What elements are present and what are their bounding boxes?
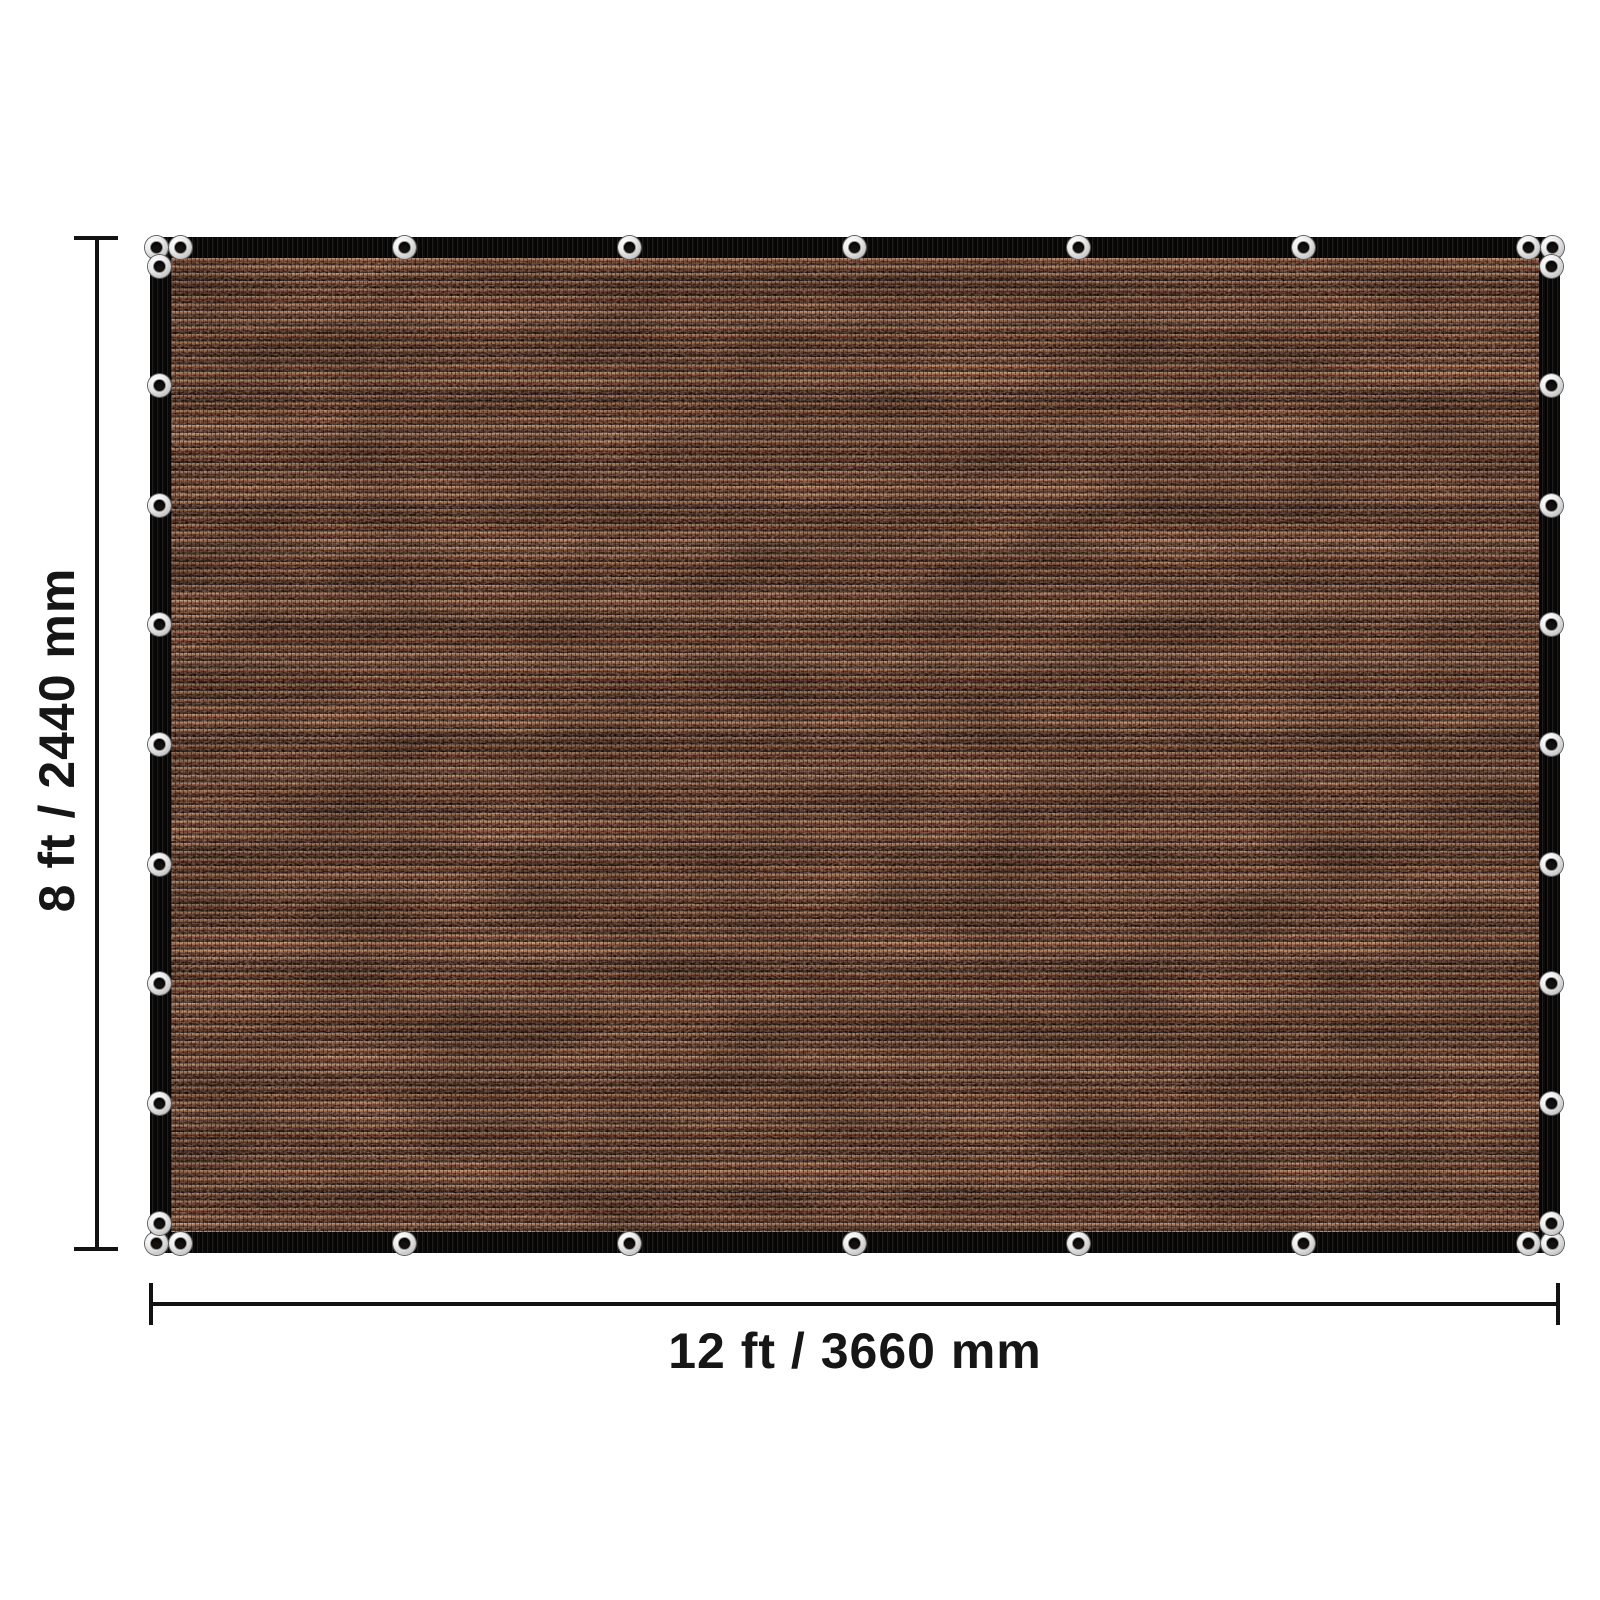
grommet [393, 236, 416, 259]
height-dimension-cap-top [74, 236, 118, 240]
grommet [1067, 1232, 1090, 1255]
fabric-mesh-texture [171, 258, 1539, 1232]
grommet [1540, 494, 1563, 517]
grommet [148, 494, 171, 517]
grommet [1067, 236, 1090, 259]
grommet [145, 1232, 168, 1255]
grommet [618, 1232, 641, 1255]
grommet [1540, 613, 1563, 636]
grommet [843, 1232, 866, 1255]
grommet [1540, 374, 1563, 397]
grommet [1292, 236, 1315, 259]
grommet [1540, 1092, 1563, 1115]
grommet [169, 1232, 192, 1255]
width-dimension-line [151, 1302, 1559, 1306]
height-dimension-cap-bottom [74, 1247, 118, 1251]
grommet [1540, 853, 1563, 876]
width-dimension-cap-right [1556, 1283, 1560, 1325]
grommet [1541, 1232, 1564, 1255]
height-dimension-line [95, 238, 99, 1251]
product-dimension-diagram: 8 ft / 2440 mm 12 ft / 3660 mm [0, 0, 1600, 1600]
grommet [148, 255, 171, 278]
grommet [148, 972, 171, 995]
grommet [1540, 1212, 1563, 1235]
grommet [148, 853, 171, 876]
grommet [1292, 1232, 1315, 1255]
height-dimension-label: 8 ft / 2440 mm [28, 390, 86, 1090]
grommet [393, 1232, 416, 1255]
grommet [169, 236, 192, 259]
grommet [843, 236, 866, 259]
grommet [148, 1092, 171, 1115]
width-dimension-cap-left [149, 1283, 153, 1325]
grommet [1540, 972, 1563, 995]
grommet [1517, 236, 1540, 259]
shade-cloth-panel [150, 237, 1560, 1253]
grommet [148, 1212, 171, 1235]
grommet [1540, 255, 1563, 278]
grommet [148, 733, 171, 756]
fabric-noise-overlay [171, 258, 1539, 1232]
grommet [148, 374, 171, 397]
width-dimension-label: 12 ft / 3660 mm [150, 1322, 1560, 1380]
grommet [618, 236, 641, 259]
grommet [1517, 1232, 1540, 1255]
grommet [1540, 733, 1563, 756]
grommet [148, 613, 171, 636]
